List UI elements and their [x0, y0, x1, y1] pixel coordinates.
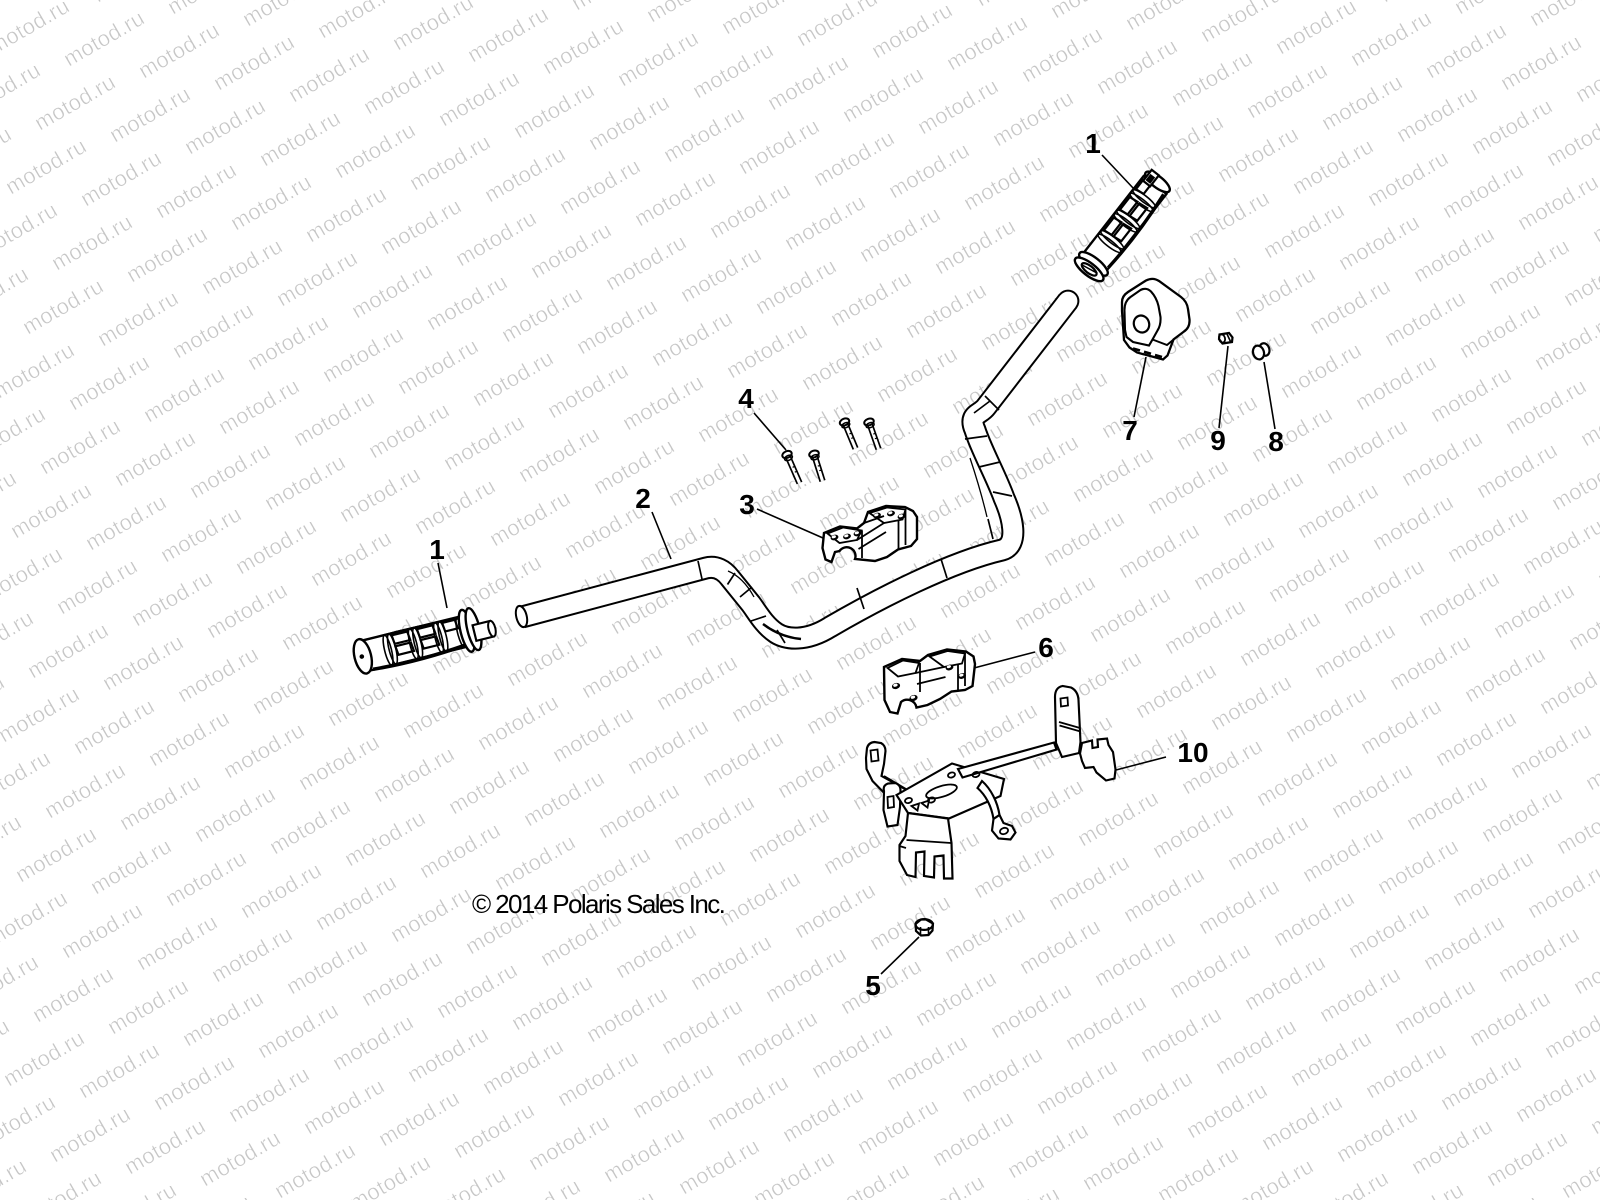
svg-text:2: 2 — [635, 483, 651, 514]
svg-text:3: 3 — [739, 489, 755, 520]
svg-text:1: 1 — [429, 534, 445, 565]
svg-text:10: 10 — [1177, 737, 1208, 768]
svg-text:4: 4 — [738, 383, 754, 414]
svg-text:1: 1 — [1085, 128, 1101, 159]
svg-text:© 2014 Polaris Sales Inc.: © 2014 Polaris Sales Inc. — [472, 889, 724, 919]
svg-text:6: 6 — [1038, 632, 1054, 663]
svg-text:5: 5 — [865, 970, 881, 1001]
svg-text:8: 8 — [1268, 426, 1284, 457]
svg-text:9: 9 — [1210, 425, 1226, 456]
svg-text:7: 7 — [1122, 415, 1138, 446]
